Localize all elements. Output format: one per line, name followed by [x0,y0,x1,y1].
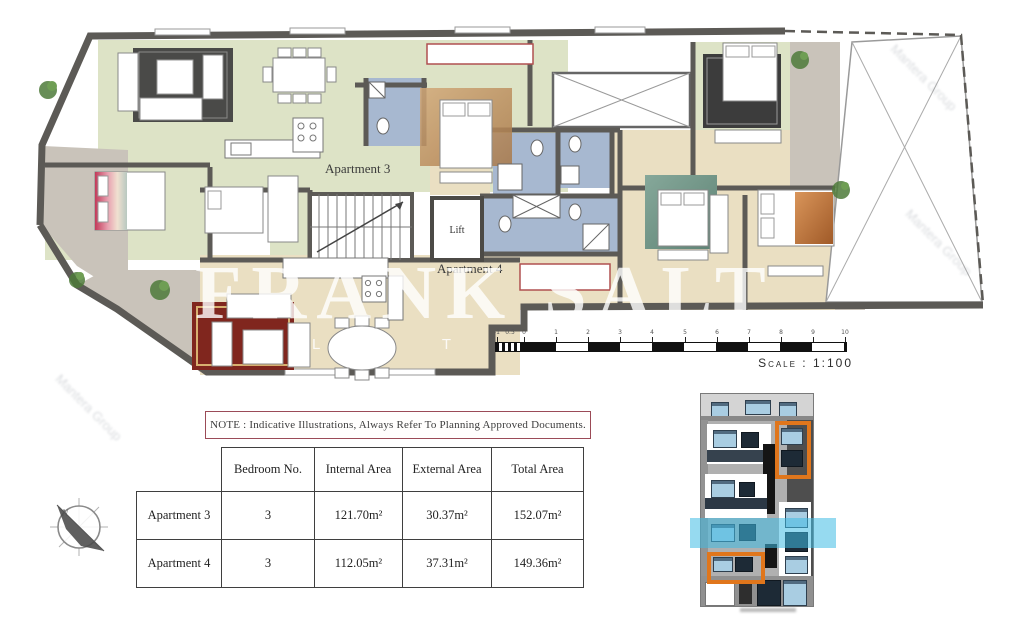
elevation-window [779,402,797,417]
apartment3-label: Apartment 3 [325,161,390,176]
scale-tick: 5 [683,329,687,336]
living-room-1-furniture [118,48,233,122]
scale-tick: -1 [494,329,500,336]
table-cell: 37.31m² [402,539,492,588]
scale-bar-segments [523,342,847,352]
scale-tick: 8 [779,329,783,336]
table-row-label: Apartment 3 [136,491,222,540]
table-cell: 3 [221,539,315,588]
lift: Lift [432,198,482,260]
internal-shaft [553,73,690,127]
elevation-window-dark [739,482,755,497]
scale-tick: 3 [618,329,622,336]
scale-bar: -1 0.5 0 1 2 3 4 5 6 7 8 9 10 Scale : 1:… [495,329,853,375]
table-corner-cell [136,447,222,492]
table-header-bedroom: Bedroom No. [221,447,315,492]
note-box: NOTE : Indicative Illustrations, Always … [205,411,591,439]
elevation-garage-door [705,582,735,606]
table-cell: 30.37m² [402,491,492,540]
north-compass: N [40,490,120,570]
scale-label: Scale : 1:100 [758,356,853,370]
area-table: Bedroom No. Internal Area External Area … [137,448,584,588]
bedroom-3-furniture [645,175,717,260]
living-room-2-furniture [192,294,310,370]
compass-north-label: N [61,508,69,518]
scale-tick: 9 [811,329,815,336]
table-row-label: Apartment 4 [136,539,222,588]
elevation-window [713,430,737,448]
void-area [826,36,982,302]
scale-tick: 0.5 [505,329,515,336]
scale-tick: 10 [841,329,849,336]
elevation-window-dark [741,432,759,448]
table-cell: 152.07m² [491,491,584,540]
scale-tick: 7 [747,329,751,336]
scale-tick: 0 [522,329,526,336]
bedroom-5-furniture [703,43,781,143]
scale-tick: 1 [554,329,558,336]
elevation-facade [700,393,814,607]
elevation-window [745,400,771,415]
building-elevation [688,390,858,616]
scale-tick: 6 [715,329,719,336]
elevation-entrance-door [739,582,752,604]
elevation-sill-band [707,450,771,462]
scale-bar-subdivisions [495,342,525,352]
table-header-external: External Area [402,447,492,492]
staircase [310,194,412,260]
table-header-internal: Internal Area [314,447,403,492]
elevation-window [711,402,729,417]
elevation-caption [740,608,796,612]
table-cell: 112.05m² [314,539,403,588]
table-header-total: Total Area [491,447,584,492]
table-cell: 149.36m² [491,539,584,588]
highlight-orange-frame-1 [775,421,811,479]
dining-table-2 [328,316,396,380]
highlight-cyan-band [690,518,836,548]
elevation-window [711,480,735,498]
scale-tick: 4 [650,329,654,336]
table-cell: 3 [221,491,315,540]
elevation-window [785,556,808,574]
note-text: NOTE : Indicative Illustrations, Always … [210,419,586,431]
lift-label: Lift [450,225,465,236]
elevation-window [783,580,807,606]
table-cell: 121.70m² [314,491,403,540]
scale-tick: 2 [586,329,590,336]
highlight-orange-frame-2 [707,552,765,584]
apartment4-label: Apartment 4 [437,261,503,276]
floor-plan-page: { "plan": { "apartment3_label": "Apartme… [0,0,1024,618]
elevation-sill-band [705,498,767,509]
